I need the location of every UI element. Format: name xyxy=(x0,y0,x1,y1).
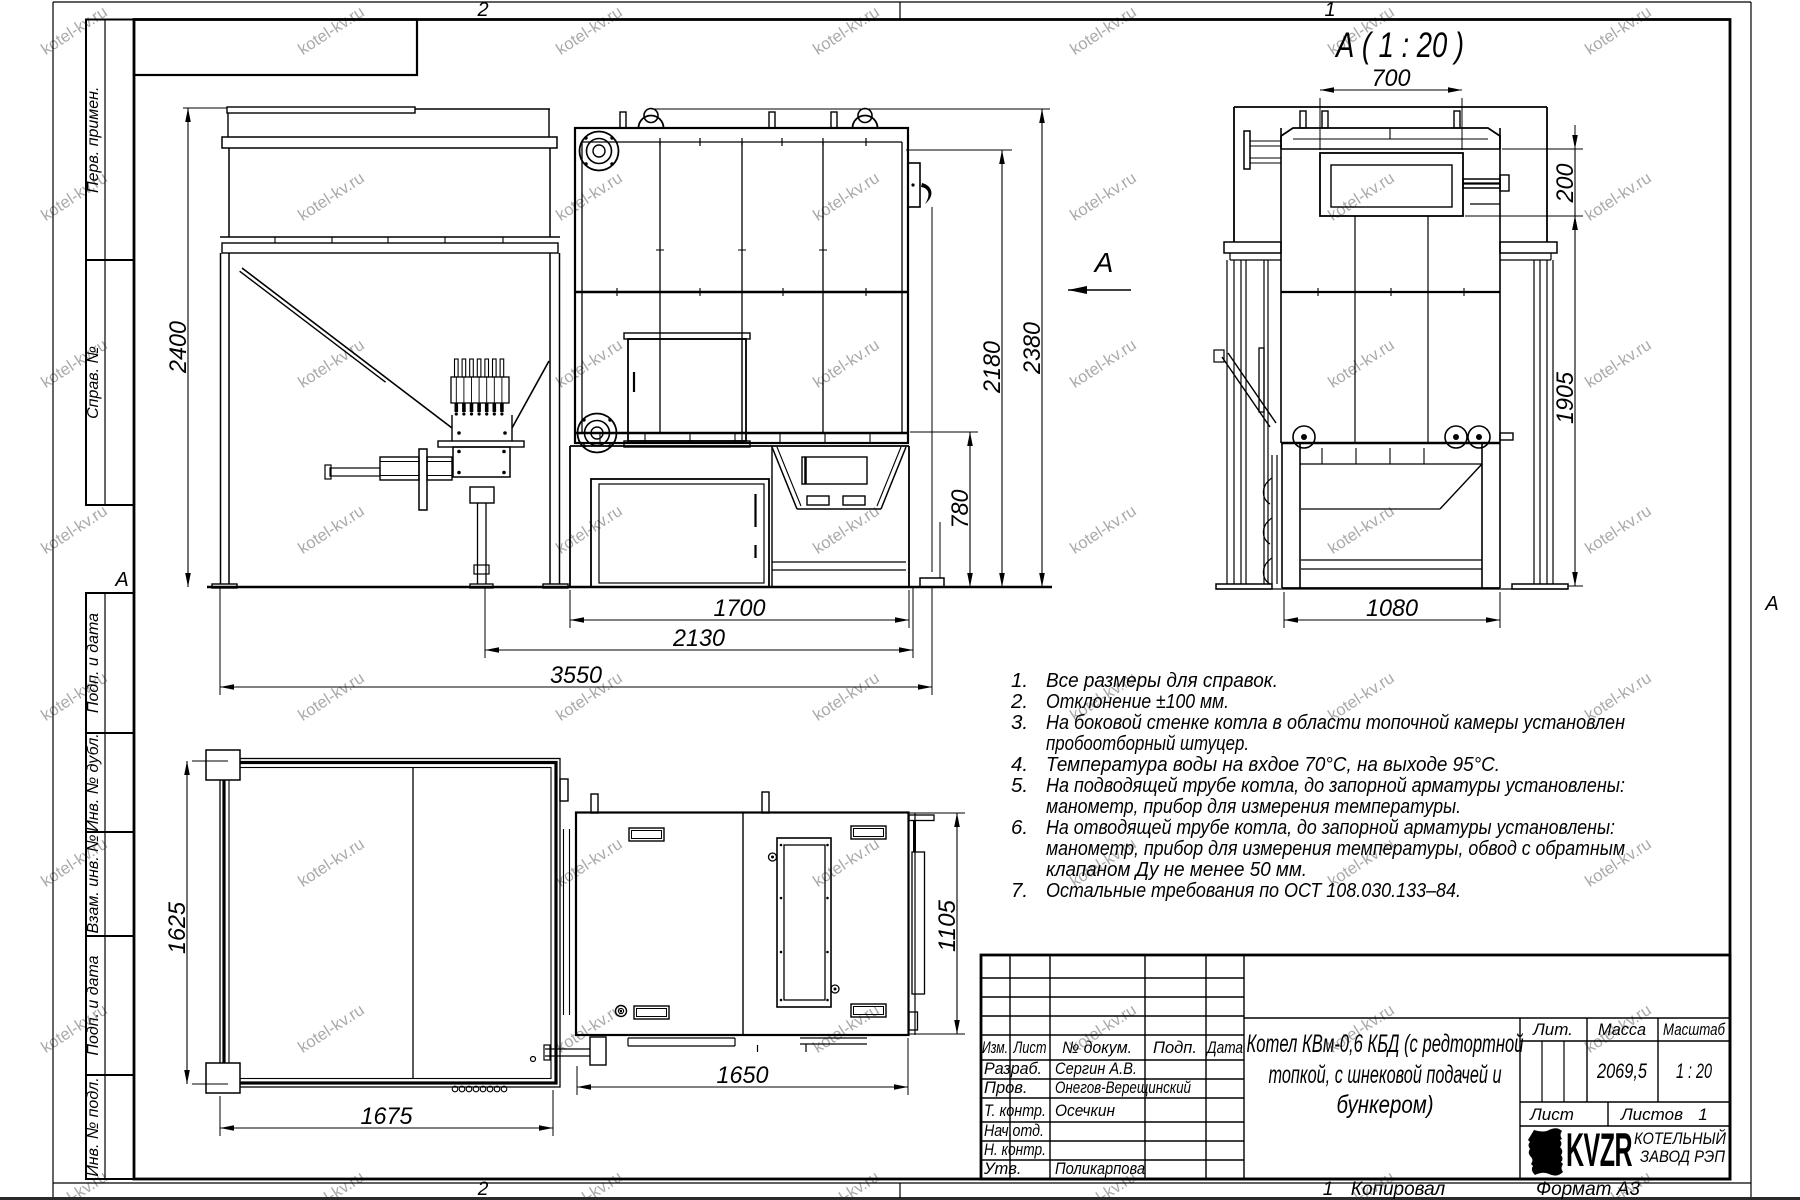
svg-text:7.: 7. xyxy=(1011,879,1028,902)
svg-text:Утв.: Утв. xyxy=(983,1160,1022,1178)
svg-text:1080: 1080 xyxy=(1366,595,1418,622)
svg-text:Формат А3: Формат А3 xyxy=(1536,1179,1640,1200)
svg-text:Лит.: Лит. xyxy=(1532,1020,1573,1039)
svg-text:На подводящей трубе котла, до: На подводящей трубе котла, до запорной а… xyxy=(1046,774,1625,797)
svg-text:2: 2 xyxy=(476,0,488,21)
svg-text:1675: 1675 xyxy=(361,1103,413,1130)
svg-text:1700: 1700 xyxy=(714,595,766,622)
svg-text:Листов: Листов xyxy=(1620,1105,1683,1124)
svg-text:Осечкин: Осечкин xyxy=(1055,1102,1115,1120)
svg-text:Котел КВм-0,6 КБД (с редтортно: Котел КВм-0,6 КБД (с редтортной xyxy=(1247,1030,1524,1058)
svg-text:3.: 3. xyxy=(1011,711,1028,734)
svg-text:Лист: Лист xyxy=(1013,1039,1047,1057)
svg-text:1625: 1625 xyxy=(164,902,191,954)
svg-text:2400: 2400 xyxy=(165,321,192,374)
svg-text:топкой, с шнековой подачей и: топкой, с шнековой подачей и xyxy=(1269,1061,1502,1089)
svg-text:1: 1 xyxy=(1324,0,1335,21)
svg-text:1.: 1. xyxy=(1011,669,1028,692)
svg-text:200: 200 xyxy=(1552,163,1579,203)
svg-text:№ докум.: № докум. xyxy=(1062,1039,1132,1057)
svg-text:KVZR: KVZR xyxy=(1566,1123,1632,1176)
svg-text:бункером): бункером) xyxy=(1337,1091,1434,1119)
svg-text:Масса: Масса xyxy=(1598,1020,1646,1039)
svg-text:Лист: Лист xyxy=(1529,1105,1574,1124)
svg-text:1 : 20: 1 : 20 xyxy=(1676,1060,1712,1083)
svg-text:Подп. и дата: Подп. и дата xyxy=(85,613,102,713)
svg-text:Остальные требования по ОСТ 10: Остальные требования по ОСТ 108.030.133–… xyxy=(1046,879,1461,902)
svg-text:Пров.: Пров. xyxy=(984,1079,1028,1097)
svg-text:А ( 1 : 20 ): А ( 1 : 20 ) xyxy=(1334,26,1464,65)
svg-text:клапаном Ду не менее 50 мм.: клапаном Ду не менее 50 мм. xyxy=(1046,858,1307,881)
svg-text:На боковой стенке котла в обла: На боковой стенке котла в области топочн… xyxy=(1046,711,1625,734)
svg-text:1: 1 xyxy=(1698,1105,1707,1124)
svg-text:Поликарпова: Поликарпова xyxy=(1055,1160,1145,1178)
svg-text:2130: 2130 xyxy=(672,625,725,652)
svg-text:2180: 2180 xyxy=(979,341,1006,394)
svg-text:Подп. и дата: Подп. и дата xyxy=(85,955,102,1055)
svg-text:3550: 3550 xyxy=(550,662,602,689)
svg-text:6.: 6. xyxy=(1011,816,1028,839)
svg-text:Масштаб: Масштаб xyxy=(1663,1020,1726,1039)
svg-text:2.: 2. xyxy=(1010,690,1028,713)
svg-text:Дата: Дата xyxy=(1205,1039,1243,1057)
svg-text:Н. контр.: Н. контр. xyxy=(984,1141,1046,1159)
svg-text:Перв. примен.: Перв. примен. xyxy=(85,87,102,193)
svg-text:Инв. № дубл.: Инв. № дубл. xyxy=(85,733,102,831)
svg-text:1650: 1650 xyxy=(717,1062,769,1089)
svg-text:А: А xyxy=(1093,247,1114,278)
svg-text:А: А xyxy=(1764,593,1778,615)
svg-text:Температура воды на вхдое 70°С: Температура воды на вхдое 70°С, на выход… xyxy=(1046,753,1500,776)
svg-text:700: 700 xyxy=(1372,65,1411,92)
svg-text:Т. контр.: Т. контр. xyxy=(984,1102,1046,1120)
svg-text:5.: 5. xyxy=(1011,774,1028,797)
svg-text:А: А xyxy=(114,569,128,591)
svg-text:Отклонение ±100 мм.: Отклонение ±100 мм. xyxy=(1046,690,1229,713)
svg-text:Взам. инв. №: Взам. инв. № xyxy=(85,835,102,934)
svg-text:Копировал: Копировал xyxy=(1351,1179,1446,1200)
svg-text:Все размеры для справок.: Все размеры для справок. xyxy=(1046,669,1278,692)
svg-text:2: 2 xyxy=(477,1179,489,1200)
svg-text:манометр, прибор для измерения: манометр, прибор для измерения температу… xyxy=(1046,837,1625,860)
svg-text:Инв. № подл.: Инв. № подл. xyxy=(85,1077,102,1176)
svg-text:4.: 4. xyxy=(1011,753,1028,776)
svg-text:1: 1 xyxy=(1323,1179,1334,1200)
svg-text:2069,5: 2069,5 xyxy=(1596,1060,1647,1083)
svg-text:Онегов-Верещинский: Онегов-Верещинский xyxy=(1055,1079,1191,1097)
svg-text:Разраб.: Разраб. xyxy=(984,1060,1042,1078)
svg-text:КОТЕЛЬНЫЙ: КОТЕЛЬНЫЙ xyxy=(1634,1128,1727,1148)
svg-text:2380: 2380 xyxy=(1019,322,1046,375)
svg-text:Сергин А.В.: Сергин А.В. xyxy=(1055,1060,1137,1078)
svg-text:1905: 1905 xyxy=(1552,372,1579,424)
svg-text:Подп.: Подп. xyxy=(1153,1039,1197,1057)
svg-text:1105: 1105 xyxy=(934,900,961,952)
svg-text:Изм.: Изм. xyxy=(982,1039,1008,1057)
svg-text:ЗАВОД РЭП: ЗАВОД РЭП xyxy=(1640,1147,1726,1166)
svg-text:манометр, прибор для измерения: манометр, прибор для измерения температу… xyxy=(1046,795,1461,818)
svg-text:Справ. №: Справ. № xyxy=(85,346,102,419)
svg-text:пробоотборный штуцер.: пробоотборный штуцер. xyxy=(1046,732,1249,755)
svg-text:На отводящей трубе котла, до з: На отводящей трубе котла, до запорной ар… xyxy=(1046,816,1615,839)
svg-text:Нач.отд.: Нач.отд. xyxy=(984,1122,1044,1140)
svg-text:780: 780 xyxy=(947,489,974,528)
